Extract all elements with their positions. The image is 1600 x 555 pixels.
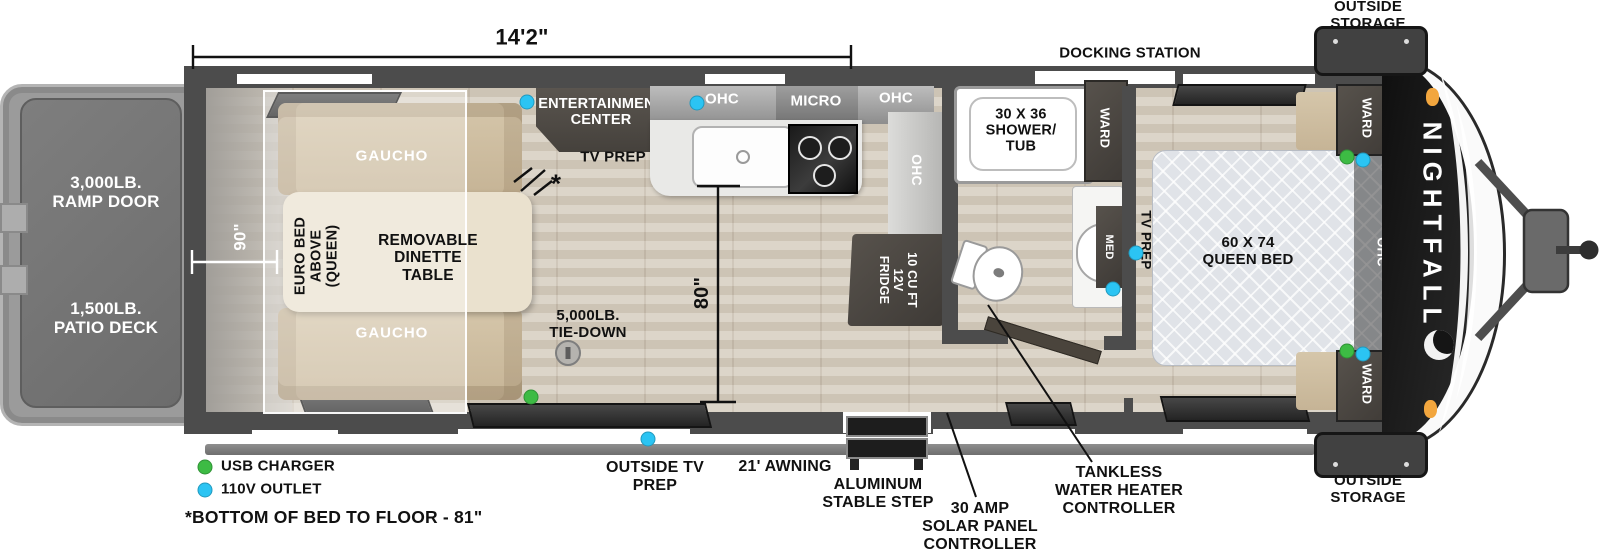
hitch-ball: [1580, 241, 1599, 260]
power-outlet-dot: [1106, 282, 1121, 297]
kitchen-depth-label: 80": [691, 277, 713, 309]
usb-charger-dot: [1340, 344, 1355, 359]
power-outlet-dot: [1129, 246, 1144, 261]
length-dimension-line: [193, 45, 851, 69]
hitch-assembly: [1478, 162, 1599, 338]
usb-charger-dot: [1340, 150, 1355, 165]
tankless-leader-line: [988, 305, 1092, 462]
power-outlet-dot: [1356, 347, 1371, 362]
annotation-lines: [0, 0, 1600, 555]
solar-leader-line: [947, 413, 976, 497]
bed-height-marker: [514, 168, 552, 195]
floorplan-canvas: 3,000LB. RAMP DOOR 1,500LB. PATIO DECK G…: [0, 0, 1600, 555]
garage-width-label: 90": [230, 223, 249, 251]
power-outlet-dot: [1356, 153, 1371, 168]
garage-dimension-line: [192, 250, 277, 274]
bed-height-asterisk: *: [551, 169, 561, 198]
power-outlet-dot: [641, 432, 656, 447]
